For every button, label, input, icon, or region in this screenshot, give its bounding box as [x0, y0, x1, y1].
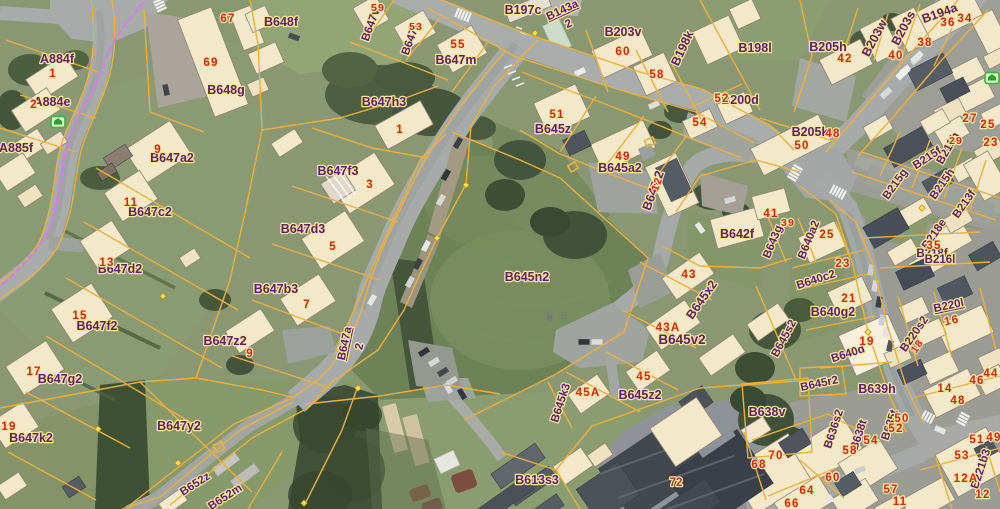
svg-text:9: 9	[246, 348, 254, 360]
svg-text:15: 15	[72, 310, 87, 322]
svg-text:A884f: A884f	[40, 52, 75, 66]
svg-text:55: 55	[450, 39, 465, 51]
svg-text:45A: 45A	[576, 387, 601, 399]
svg-text:50: 50	[794, 140, 809, 152]
svg-text:B648f: B648f	[264, 15, 299, 29]
svg-text:B647h3: B647h3	[362, 95, 407, 109]
svg-text:B642f: B642f	[720, 227, 755, 241]
svg-text:48: 48	[950, 395, 965, 407]
svg-text:1: 1	[396, 124, 404, 136]
svg-text:12: 12	[975, 489, 990, 501]
svg-text:40: 40	[888, 50, 903, 62]
svg-text:27: 27	[962, 113, 977, 125]
svg-text:21: 21	[841, 293, 856, 305]
svg-text:B205h: B205h	[809, 40, 847, 54]
svg-text:B197c: B197c	[505, 3, 542, 17]
svg-text:51: 51	[969, 434, 984, 446]
svg-text:19: 19	[859, 336, 874, 348]
svg-text:66: 66	[784, 498, 799, 509]
svg-text:68: 68	[751, 459, 766, 471]
svg-text:2: 2	[30, 99, 38, 111]
svg-text:B638v: B638v	[749, 405, 786, 419]
svg-text:9: 9	[154, 144, 162, 156]
svg-text:57: 57	[883, 484, 898, 496]
svg-text:B639h: B639h	[858, 382, 896, 396]
svg-text:53: 53	[954, 450, 969, 462]
svg-text:7: 7	[303, 299, 311, 311]
svg-text:A885f: A885f	[0, 141, 34, 155]
svg-text:B647b3: B647b3	[254, 282, 299, 296]
svg-text:59: 59	[371, 2, 385, 14]
svg-text:B647f3: B647f3	[318, 164, 359, 178]
svg-text:46: 46	[969, 375, 984, 387]
svg-text:B647y2: B647y2	[157, 419, 201, 433]
svg-text:11: 11	[893, 496, 908, 508]
svg-text:B647z2: B647z2	[203, 334, 246, 348]
svg-text:B205k: B205k	[792, 125, 829, 139]
svg-text:42: 42	[837, 53, 852, 65]
svg-text:54: 54	[863, 435, 878, 447]
svg-text:48: 48	[825, 128, 840, 140]
svg-text:52: 52	[714, 93, 729, 105]
svg-text:49: 49	[986, 432, 1000, 444]
svg-text:38: 38	[917, 37, 932, 49]
svg-text:23: 23	[983, 137, 998, 149]
svg-text:□: □	[562, 312, 567, 321]
svg-text:36: 36	[940, 17, 955, 29]
svg-text:13: 13	[99, 257, 114, 269]
svg-text:60: 60	[825, 472, 840, 484]
svg-text:58: 58	[842, 445, 857, 457]
svg-text:44: 44	[983, 368, 998, 380]
svg-text:25: 25	[819, 229, 834, 241]
svg-text:54: 54	[692, 117, 707, 129]
svg-text:72: 72	[670, 477, 683, 489]
svg-text:70: 70	[768, 450, 783, 462]
svg-text:53: 53	[409, 21, 423, 33]
svg-text:45: 45	[636, 371, 651, 383]
svg-text:B647m: B647m	[436, 53, 477, 67]
svg-text:B647g2: B647g2	[38, 372, 83, 386]
svg-text:41: 41	[763, 208, 778, 220]
svg-text:B645z2: B645z2	[618, 388, 661, 402]
svg-text:5: 5	[329, 241, 337, 253]
svg-text:Ⓜ: Ⓜ	[546, 313, 554, 322]
svg-text:34: 34	[957, 13, 972, 25]
svg-text:69: 69	[203, 57, 218, 69]
svg-text:29: 29	[949, 135, 963, 147]
svg-text:14: 14	[937, 383, 952, 395]
svg-text:B216l: B216l	[925, 254, 956, 266]
svg-text:B648g: B648g	[207, 83, 245, 97]
svg-text:11: 11	[124, 197, 139, 209]
svg-text:51: 51	[549, 109, 564, 121]
svg-text:12A: 12A	[954, 473, 979, 485]
svg-text:B645n2: B645n2	[505, 270, 550, 284]
svg-text:52: 52	[888, 423, 903, 435]
svg-text:A884e: A884e	[34, 95, 71, 109]
svg-text:64: 64	[799, 485, 814, 497]
svg-text:17: 17	[26, 366, 41, 378]
svg-text:1: 1	[49, 68, 57, 80]
svg-text:49: 49	[615, 151, 630, 163]
svg-text:B645z: B645z	[535, 122, 571, 136]
svg-text:B613s3: B613s3	[515, 473, 559, 487]
svg-text:60: 60	[615, 46, 630, 58]
svg-text:B640g2: B640g2	[811, 305, 856, 319]
svg-text:23: 23	[835, 258, 850, 270]
svg-text:67: 67	[220, 13, 235, 25]
svg-text:B198l: B198l	[738, 41, 771, 55]
svg-text:3: 3	[366, 179, 374, 191]
svg-text:B645v2: B645v2	[658, 332, 705, 347]
svg-text:43A: 43A	[656, 322, 681, 334]
svg-text:19: 19	[1, 421, 16, 433]
svg-text:B647d3: B647d3	[281, 222, 326, 236]
svg-text:B203v: B203v	[605, 25, 642, 39]
svg-text:25: 25	[980, 119, 995, 131]
svg-text:43: 43	[681, 269, 696, 281]
svg-text:B645a2: B645a2	[598, 161, 642, 175]
svg-text:B647k2: B647k2	[9, 431, 53, 445]
svg-text:35: 35	[926, 240, 941, 252]
svg-text:39: 39	[781, 217, 795, 229]
svg-text:58: 58	[649, 69, 664, 81]
